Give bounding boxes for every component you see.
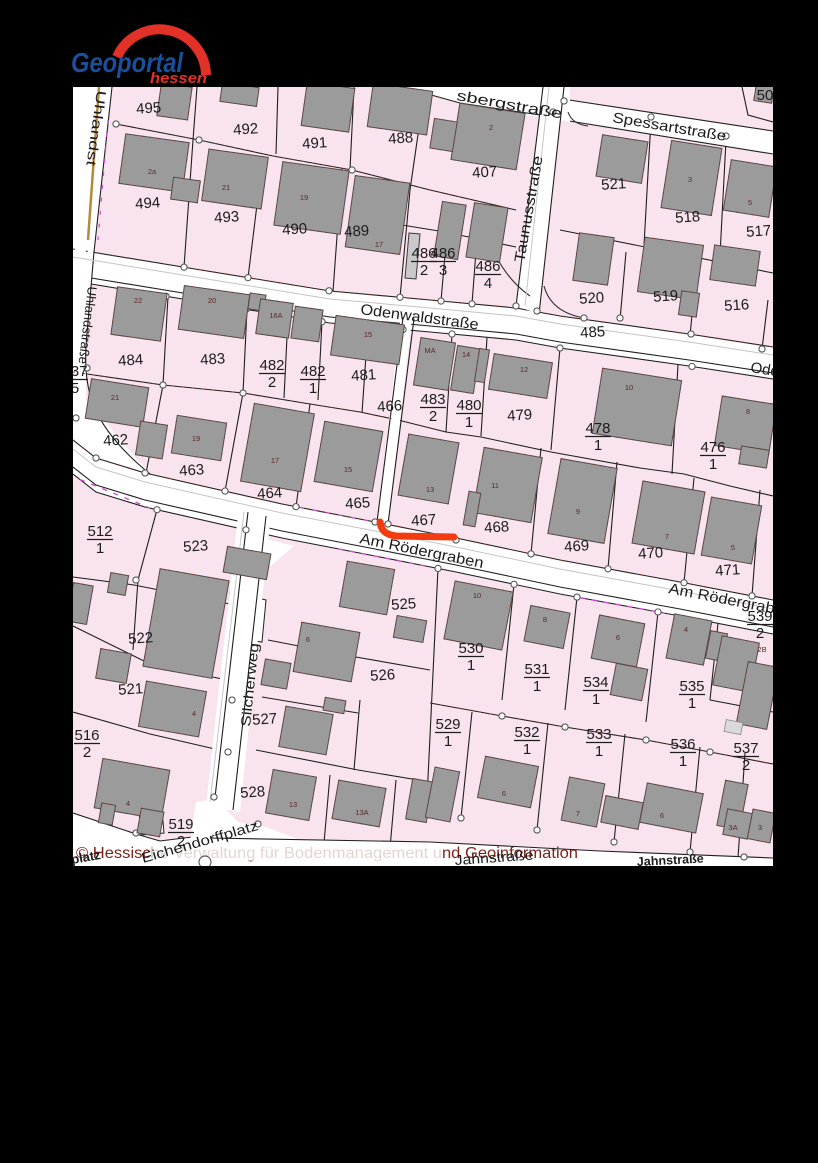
svg-text:482: 482 xyxy=(300,363,325,380)
svg-text:516: 516 xyxy=(724,296,750,315)
svg-text:488: 488 xyxy=(388,129,414,148)
svg-text:523: 523 xyxy=(183,537,209,556)
svg-text:2: 2 xyxy=(742,757,750,774)
svg-text:476: 476 xyxy=(700,439,725,456)
svg-text:519: 519 xyxy=(168,816,193,833)
svg-text:17: 17 xyxy=(271,456,279,465)
svg-text:537: 537 xyxy=(733,740,758,757)
svg-text:4: 4 xyxy=(126,799,130,808)
svg-text:3: 3 xyxy=(758,823,762,832)
svg-text:467: 467 xyxy=(411,511,437,530)
svg-text:483: 483 xyxy=(420,391,445,408)
svg-text:2: 2 xyxy=(83,744,91,761)
svg-text:490: 490 xyxy=(282,220,308,239)
svg-text:6: 6 xyxy=(616,633,620,642)
svg-text:407: 407 xyxy=(472,163,498,182)
svg-text:532: 532 xyxy=(514,724,539,741)
svg-text:9: 9 xyxy=(576,507,580,516)
svg-text:521: 521 xyxy=(118,680,144,699)
svg-text:530: 530 xyxy=(458,640,483,657)
svg-text:466: 466 xyxy=(377,397,403,416)
svg-text:MA: MA xyxy=(424,346,435,355)
svg-text:1: 1 xyxy=(688,695,696,712)
svg-text:535: 535 xyxy=(679,678,704,695)
svg-text:517: 517 xyxy=(746,222,772,241)
svg-text:526: 526 xyxy=(370,666,396,685)
svg-text:1: 1 xyxy=(594,437,602,454)
svg-text:1: 1 xyxy=(523,741,531,758)
svg-text:1: 1 xyxy=(595,743,603,760)
svg-text:536: 536 xyxy=(670,736,695,753)
svg-text:1: 1 xyxy=(533,678,541,695)
svg-text:485: 485 xyxy=(580,323,606,342)
svg-text:15: 15 xyxy=(344,465,352,474)
svg-text:13A: 13A xyxy=(355,808,368,817)
svg-text:493: 493 xyxy=(214,208,240,227)
svg-text:495: 495 xyxy=(136,99,162,118)
svg-text:2a: 2a xyxy=(148,167,157,176)
svg-text:491: 491 xyxy=(302,134,328,153)
svg-text:1: 1 xyxy=(592,691,600,708)
svg-text:4: 4 xyxy=(484,275,492,292)
svg-text:22: 22 xyxy=(134,296,142,305)
svg-text:462: 462 xyxy=(103,431,129,450)
svg-text:482: 482 xyxy=(259,357,284,374)
svg-text:2: 2 xyxy=(420,262,428,279)
svg-text:8: 8 xyxy=(746,407,750,416)
svg-text:2: 2 xyxy=(756,625,764,642)
svg-text:463: 463 xyxy=(179,461,205,480)
svg-text:492: 492 xyxy=(233,120,259,139)
svg-text:469: 469 xyxy=(564,537,590,556)
svg-text:5: 5 xyxy=(748,198,752,207)
svg-text:520: 520 xyxy=(579,289,605,308)
svg-text:1: 1 xyxy=(679,753,687,770)
svg-text:483: 483 xyxy=(200,350,226,369)
svg-text:1: 1 xyxy=(444,733,452,750)
svg-text:480: 480 xyxy=(456,397,481,414)
svg-text:7: 7 xyxy=(665,532,669,541)
svg-text:6: 6 xyxy=(660,811,664,820)
svg-text:4: 4 xyxy=(684,625,688,634)
svg-text:489: 489 xyxy=(344,222,370,241)
svg-text:534: 534 xyxy=(583,674,608,691)
svg-text:3A: 3A xyxy=(728,823,737,832)
svg-text:17: 17 xyxy=(375,240,383,249)
svg-text:3: 3 xyxy=(439,262,447,279)
svg-text:2: 2 xyxy=(268,374,276,391)
svg-text:2: 2 xyxy=(429,408,437,425)
svg-text:11: 11 xyxy=(491,481,499,490)
svg-text:50: 50 xyxy=(757,87,774,104)
svg-text:529: 529 xyxy=(435,716,460,733)
svg-text:10: 10 xyxy=(625,383,633,392)
svg-text:20: 20 xyxy=(208,296,216,305)
svg-text:21: 21 xyxy=(222,183,230,192)
svg-text:465: 465 xyxy=(345,494,371,513)
svg-text:471: 471 xyxy=(715,561,741,580)
svg-text:494: 494 xyxy=(135,194,161,213)
svg-text:19: 19 xyxy=(300,193,308,202)
svg-text:19: 19 xyxy=(192,434,200,443)
svg-text:512: 512 xyxy=(87,523,112,540)
svg-text:6: 6 xyxy=(502,789,506,798)
svg-text:13: 13 xyxy=(289,800,297,809)
svg-text:521: 521 xyxy=(601,175,627,194)
svg-text:481: 481 xyxy=(351,366,377,385)
svg-text:5: 5 xyxy=(731,543,735,552)
svg-text:12: 12 xyxy=(520,365,528,374)
svg-text:1: 1 xyxy=(467,657,475,674)
svg-text:519: 519 xyxy=(653,287,679,306)
svg-text:528: 528 xyxy=(240,783,266,802)
svg-text:470: 470 xyxy=(638,544,664,563)
svg-text:518: 518 xyxy=(675,208,701,227)
svg-text:468: 468 xyxy=(484,518,510,537)
svg-text:533: 533 xyxy=(586,726,611,743)
svg-text:522: 522 xyxy=(128,629,154,648)
svg-text:486: 486 xyxy=(475,258,500,275)
svg-text:15: 15 xyxy=(364,330,372,339)
svg-text:1: 1 xyxy=(465,414,473,431)
svg-text:16A: 16A xyxy=(269,311,282,320)
svg-text:2B: 2B xyxy=(757,645,766,654)
svg-text:7: 7 xyxy=(576,809,580,818)
svg-text:14: 14 xyxy=(462,350,470,359)
svg-text:1: 1 xyxy=(709,456,717,473)
svg-text:1: 1 xyxy=(309,380,317,397)
svg-text:464: 464 xyxy=(257,484,283,503)
svg-text:2: 2 xyxy=(489,123,493,132)
svg-text:484: 484 xyxy=(118,351,144,370)
svg-text:531: 531 xyxy=(524,661,549,678)
svg-text:10: 10 xyxy=(473,591,481,600)
svg-text:486: 486 xyxy=(430,245,455,262)
svg-text:3: 3 xyxy=(688,175,692,184)
svg-text:527: 527 xyxy=(252,710,278,729)
svg-text:6: 6 xyxy=(306,635,310,644)
svg-text:4: 4 xyxy=(192,709,196,718)
svg-text:13: 13 xyxy=(426,485,434,494)
svg-text:1: 1 xyxy=(96,540,104,557)
svg-text:8: 8 xyxy=(543,615,547,624)
svg-text:516: 516 xyxy=(74,727,99,744)
svg-text:478: 478 xyxy=(585,420,610,437)
svg-text:479: 479 xyxy=(507,406,533,425)
svg-text:21: 21 xyxy=(111,393,119,402)
svg-text:hessen: hessen xyxy=(150,70,207,87)
svg-text:525: 525 xyxy=(391,595,417,614)
